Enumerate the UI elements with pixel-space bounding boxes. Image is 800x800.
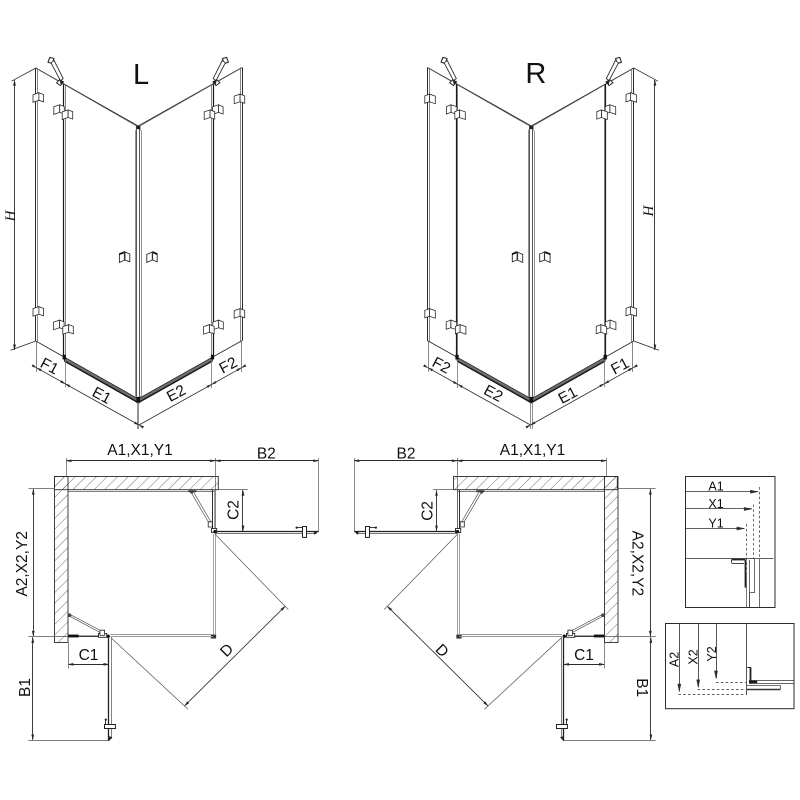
svg-text:R: R	[525, 58, 546, 90]
svg-text:C1: C1	[574, 647, 594, 664]
svg-text:B2: B2	[397, 446, 416, 463]
svg-text:B2: B2	[257, 446, 276, 463]
svg-text:A1,X1,Y1: A1,X1,Y1	[107, 442, 173, 459]
svg-text:H: H	[3, 209, 19, 222]
svg-text:B1: B1	[633, 678, 650, 697]
svg-text:H: H	[639, 204, 655, 217]
svg-text:L: L	[133, 59, 149, 91]
svg-text:C2: C2	[225, 500, 242, 520]
svg-text:A2,X2,Y2: A2,X2,Y2	[628, 531, 645, 597]
svg-text:B1: B1	[17, 678, 34, 697]
svg-text:C2: C2	[419, 501, 436, 521]
svg-text:A1,X1,Y1: A1,X1,Y1	[500, 442, 566, 459]
svg-text:C1: C1	[79, 647, 99, 664]
svg-text:A2,X2,Y2: A2,X2,Y2	[14, 531, 31, 597]
